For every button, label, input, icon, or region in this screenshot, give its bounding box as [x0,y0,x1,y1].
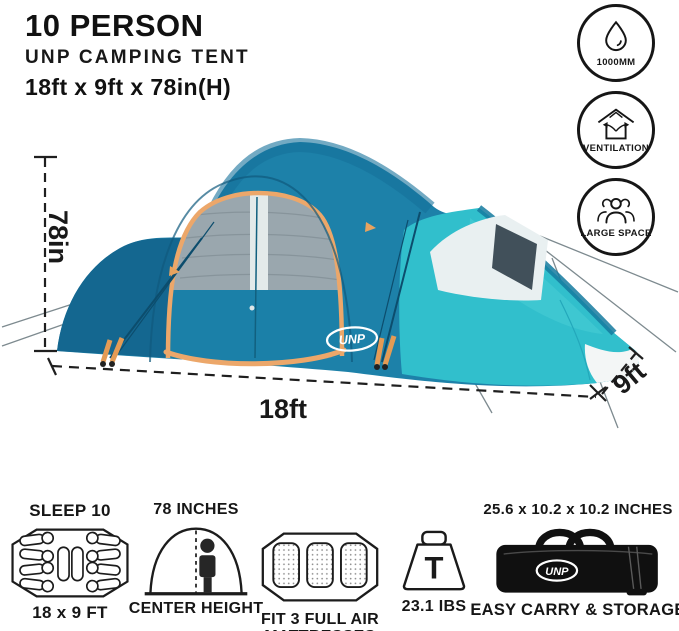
storage-title: 25.6 x 10.2 x 10.2 INCHES [483,501,672,518]
weight-caption: 23.1 IBS [402,598,467,616]
storage-caption: EASY CARRY & STORAGE [470,601,679,620]
mattress-caption-line1: FIT 3 FULL AIR [261,611,379,628]
badge-label: LARGE SPACE [580,228,651,239]
height-label: 78in [43,210,73,264]
feature-center-height: 78 INCHES CENTER HEIGHT [138,501,254,618]
sleep-title: SLEEP 10 [29,501,110,521]
water-drop-icon [598,19,634,55]
door-center-stripe [250,195,268,291]
badge-large-space: LARGE SPACE [577,178,655,256]
ventilation-icon [596,107,636,141]
badge-waterproof: 1000MM [577,4,655,82]
length-label: 18ft [259,394,307,424]
badge-label: 1000MM [597,57,636,68]
height-title: 78 INCHES [153,501,238,519]
feature-badges: 1000MM VENTILATION LARG [577,4,655,256]
badge-ventilation: VENTILATION [577,91,655,169]
size-line: 18ft x 9ft x 78in(H) [25,74,250,101]
badge-label: VENTILATION [583,143,649,154]
weight-glyph: T [425,550,444,585]
feature-storage: 25.6 x 10.2 x 10.2 INCHES UNP EASY CARRY… [480,501,676,620]
height-caption: CENTER HEIGHT [129,600,264,618]
floorplan-icon [7,525,133,601]
page-title: 10 PERSON [25,8,250,44]
product-infographic: 10 PERSON UNP CAMPING TENT 18ft x 9ft x … [0,0,679,631]
sleep-caption: 18 x 9 FT [32,603,107,623]
carry-bag-icon: UNP [487,521,669,599]
zipper-pull [250,306,255,311]
feature-mattresses: FIT 3 FULL AIR MATTRESSES [256,501,384,631]
header: 10 PERSON UNP CAMPING TENT 18ft x 9ft x … [25,8,250,101]
mattresses-icon [259,525,381,609]
tent-logo-text: UNP [338,332,366,348]
bag-logo-text: UNP [545,566,569,578]
dome-person-icon [143,522,249,598]
feature-weight: T 23.1 IBS [388,501,480,616]
weight-icon: T [397,530,471,594]
page-subtitle: UNP CAMPING TENT [25,47,250,69]
people-icon [596,195,636,226]
tent-illustration: UNP [57,142,639,386]
feature-sleep-capacity: SLEEP 10 18 x 9 FT [4,501,136,623]
